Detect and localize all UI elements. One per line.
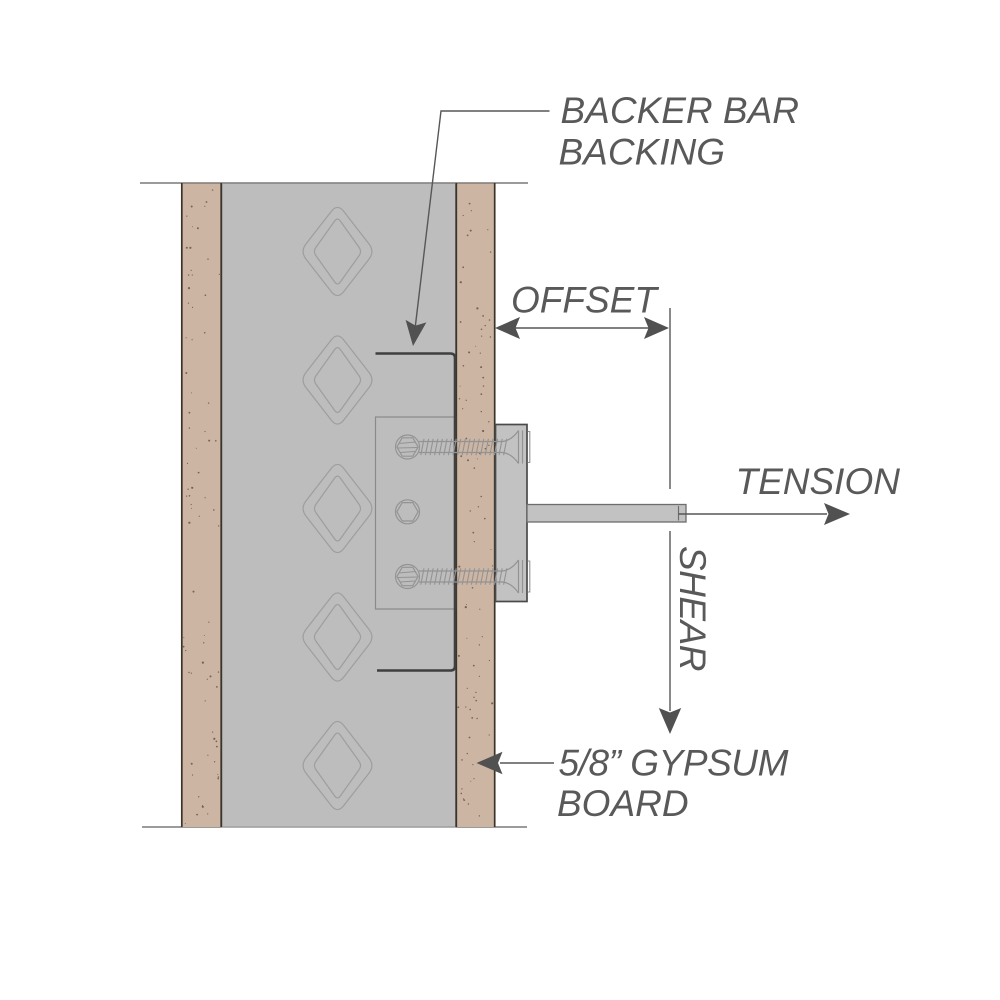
svg-text:TENSION: TENSION bbox=[736, 461, 901, 502]
svg-text:5/8” GYPSUM: 5/8” GYPSUM bbox=[559, 743, 789, 784]
svg-text:SHEAR: SHEAR bbox=[672, 546, 713, 671]
svg-text:BOARD: BOARD bbox=[557, 783, 689, 824]
svg-text:BACKER BAR: BACKER BAR bbox=[561, 90, 800, 131]
svg-text:OFFSET: OFFSET bbox=[511, 280, 659, 321]
svg-text:BACKING: BACKING bbox=[559, 132, 726, 173]
